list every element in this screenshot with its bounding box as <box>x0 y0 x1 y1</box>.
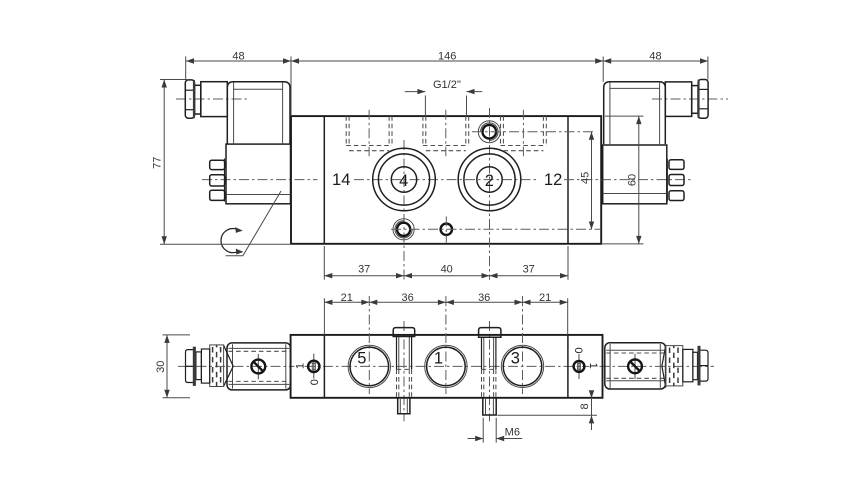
svg-text:48: 48 <box>649 50 661 62</box>
svg-text:0: 0 <box>572 347 584 353</box>
svg-text:60: 60 <box>626 174 638 186</box>
svg-text:37: 37 <box>358 263 370 275</box>
svg-text:21: 21 <box>539 292 551 304</box>
svg-text:36: 36 <box>478 292 490 304</box>
svg-text:3: 3 <box>511 350 520 368</box>
svg-text:37: 37 <box>523 263 535 275</box>
svg-text:77: 77 <box>152 157 164 169</box>
svg-text:G1/2'': G1/2'' <box>433 79 461 91</box>
svg-text:1: 1 <box>587 363 599 369</box>
svg-text:36: 36 <box>401 292 413 304</box>
svg-text:5: 5 <box>357 350 366 368</box>
svg-text:1: 1 <box>434 350 443 368</box>
svg-text:40: 40 <box>441 263 453 275</box>
svg-text:48: 48 <box>232 50 244 62</box>
svg-text:45: 45 <box>580 172 592 184</box>
svg-text:12: 12 <box>544 171 562 189</box>
svg-text:8: 8 <box>579 403 591 409</box>
svg-text:21: 21 <box>341 292 353 304</box>
svg-text:2: 2 <box>485 172 494 190</box>
svg-text:0: 0 <box>309 379 321 385</box>
svg-text:30: 30 <box>155 361 167 373</box>
svg-text:146: 146 <box>438 50 456 62</box>
svg-text:4: 4 <box>399 172 408 190</box>
svg-text:M6: M6 <box>505 427 520 439</box>
svg-text:14: 14 <box>332 171 350 189</box>
svg-text:1: 1 <box>294 363 306 369</box>
